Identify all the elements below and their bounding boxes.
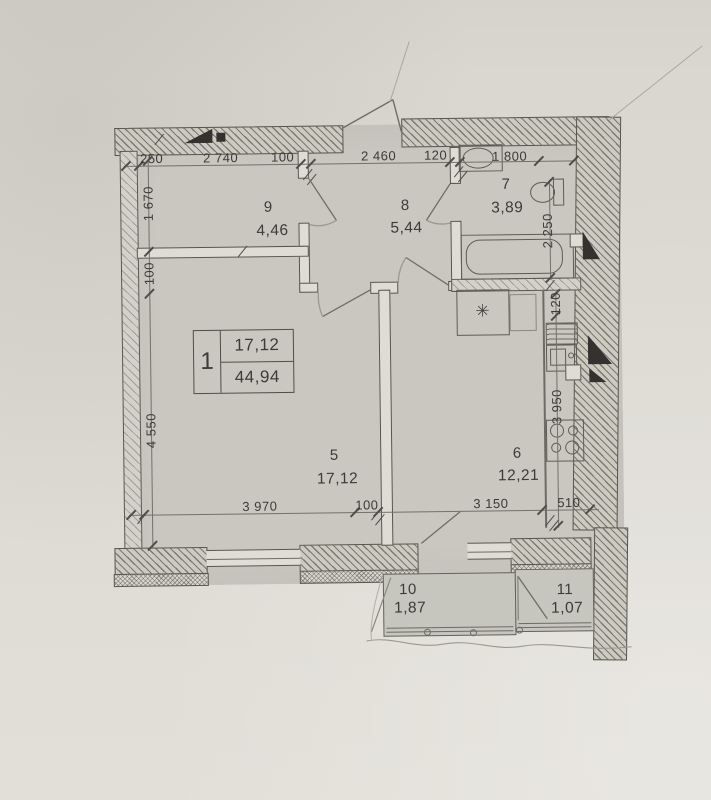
room-7-number: 7: [501, 176, 510, 193]
window-room5: [206, 549, 300, 567]
room-10-number: 10: [399, 581, 417, 598]
wall-niche: [565, 364, 581, 380]
living-area-value: 17,12: [221, 330, 293, 362]
room-5-number: 5: [330, 447, 339, 464]
wall-bottom-mid: [299, 543, 418, 571]
pencil-line: [370, 575, 383, 640]
kitchen-sink-drain-icon: [568, 352, 574, 358]
room-9-area: 4,46: [256, 222, 288, 240]
wall-room8-bottom-left: [299, 283, 318, 293]
kitchen-sink-basin-icon: [550, 349, 566, 366]
leader-line: [608, 46, 703, 120]
insulation-bottom-left: [114, 573, 209, 587]
dim-bottom-510: 510: [557, 495, 580, 510]
room-9-number: 9: [264, 199, 273, 216]
wall-room9-bottom: [137, 246, 309, 259]
balcony-10-railing: [386, 626, 513, 633]
wall-pier-bottom-right: [593, 527, 628, 660]
total-area-value: 44,94: [221, 361, 293, 392]
dim-bath-2250: 2 250: [540, 213, 555, 248]
dim-left-1670: 1 670: [140, 186, 155, 221]
vent-star-icon: ✳: [475, 301, 489, 321]
pencil-squiggle: [367, 637, 632, 652]
window-room6: [467, 542, 511, 560]
dim-top-120: 120: [424, 147, 447, 162]
room-11-area: 1,07: [551, 599, 583, 617]
dim-bottom-3970: 3 970: [242, 499, 277, 514]
room-11-number: 11: [557, 581, 574, 598]
dim-left-4550: 4 550: [143, 413, 158, 448]
apartment-stamp: 1 17,12 44,94: [193, 329, 295, 394]
dim-kitchen-3950: 3 950: [549, 389, 564, 424]
dim-top-2740: 2 740: [203, 150, 238, 165]
wall-right: [573, 116, 622, 530]
balcony-11-railing: [518, 622, 591, 628]
dim-top-2460: 2 460: [361, 148, 396, 163]
room-8-number: 8: [401, 197, 410, 214]
leader-line: [389, 41, 410, 101]
dim-kitchen-120: 120: [548, 292, 563, 315]
dim-bottom-100: 100: [355, 497, 378, 512]
toilet-tank-icon: [553, 179, 564, 206]
wall-bottom-left: [114, 547, 207, 575]
apartment-floor-plan: ✳ 1 17,12 44,94 9 4,46 8 5,44 7 3,89 5 1…: [0, 0, 711, 800]
vent-shaft-box-side: [509, 294, 536, 331]
wall-niche: [570, 233, 584, 247]
apartment-number: 1: [194, 331, 222, 393]
dim-top-100: 100: [271, 149, 294, 164]
wall-bottom-right: [510, 537, 591, 565]
floor-plan-photo: ✳ 1 17,12 44,94 9 4,46 8 5,44 7 3,89 5 1…: [0, 0, 711, 800]
stove-burner-icon: [568, 425, 578, 435]
dim-top-1800: 1 800: [492, 149, 527, 164]
room-8-area: 5,44: [390, 219, 422, 237]
room-6-number: 6: [513, 445, 522, 462]
dim-left-100: 100: [141, 262, 156, 285]
room-10-area: 1,87: [394, 599, 426, 617]
room-7-area: 3,89: [491, 199, 523, 217]
stove-burner-icon: [565, 440, 579, 454]
dim-bottom-3150: 3 150: [473, 496, 508, 511]
room-5-area: 17,12: [317, 470, 359, 489]
radiator-icon: [546, 322, 578, 344]
room-6-area: 12,21: [498, 467, 540, 486]
